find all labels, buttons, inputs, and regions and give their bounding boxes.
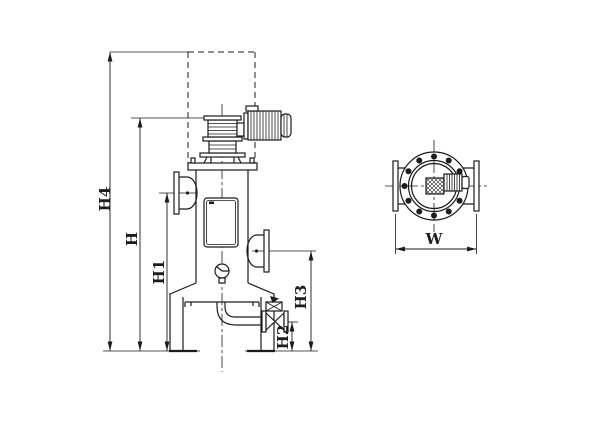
gearbox-mid-flange [203,137,242,141]
inlet-center-mark [186,191,189,194]
dimension-label-h: H [123,232,141,246]
drawing-canvas: H4 H H1 H2 H3 [0,0,605,428]
flange-stud-left [191,158,195,163]
top-flange [188,163,257,170]
panel-latch [209,202,214,205]
top-view-motor-cap [462,177,469,189]
dimension-label-h2: H2 [274,325,292,350]
gauge-stem [219,278,225,283]
gearbox-body [208,120,237,137]
top-view-gearbox [426,178,444,194]
motor-body [248,111,281,140]
engineering-drawing: H4 H H1 H2 H3 [0,0,605,428]
gearbox-lower-housing [209,141,236,153]
drawing-background [0,0,605,428]
motor-terminal-box [246,106,258,111]
dimension-label-w: W [425,230,444,248]
inlet-flange [174,172,179,214]
motor-flange [244,113,248,139]
outlet-center-mark [255,249,258,252]
dimension-label-h1: H1 [150,260,168,285]
motor-adapter [237,123,244,136]
drive-base-plate [200,153,245,157]
dimension-label-h4: H4 [96,187,114,212]
outlet-flange [264,230,269,272]
flange-stud-right [250,158,254,163]
dimension-label-h3: H3 [292,285,310,310]
dimension-h2: H2 [274,322,292,351]
motor-end-cap [281,114,291,137]
gearbox-top-plate [204,116,241,120]
access-panel [204,198,238,247]
